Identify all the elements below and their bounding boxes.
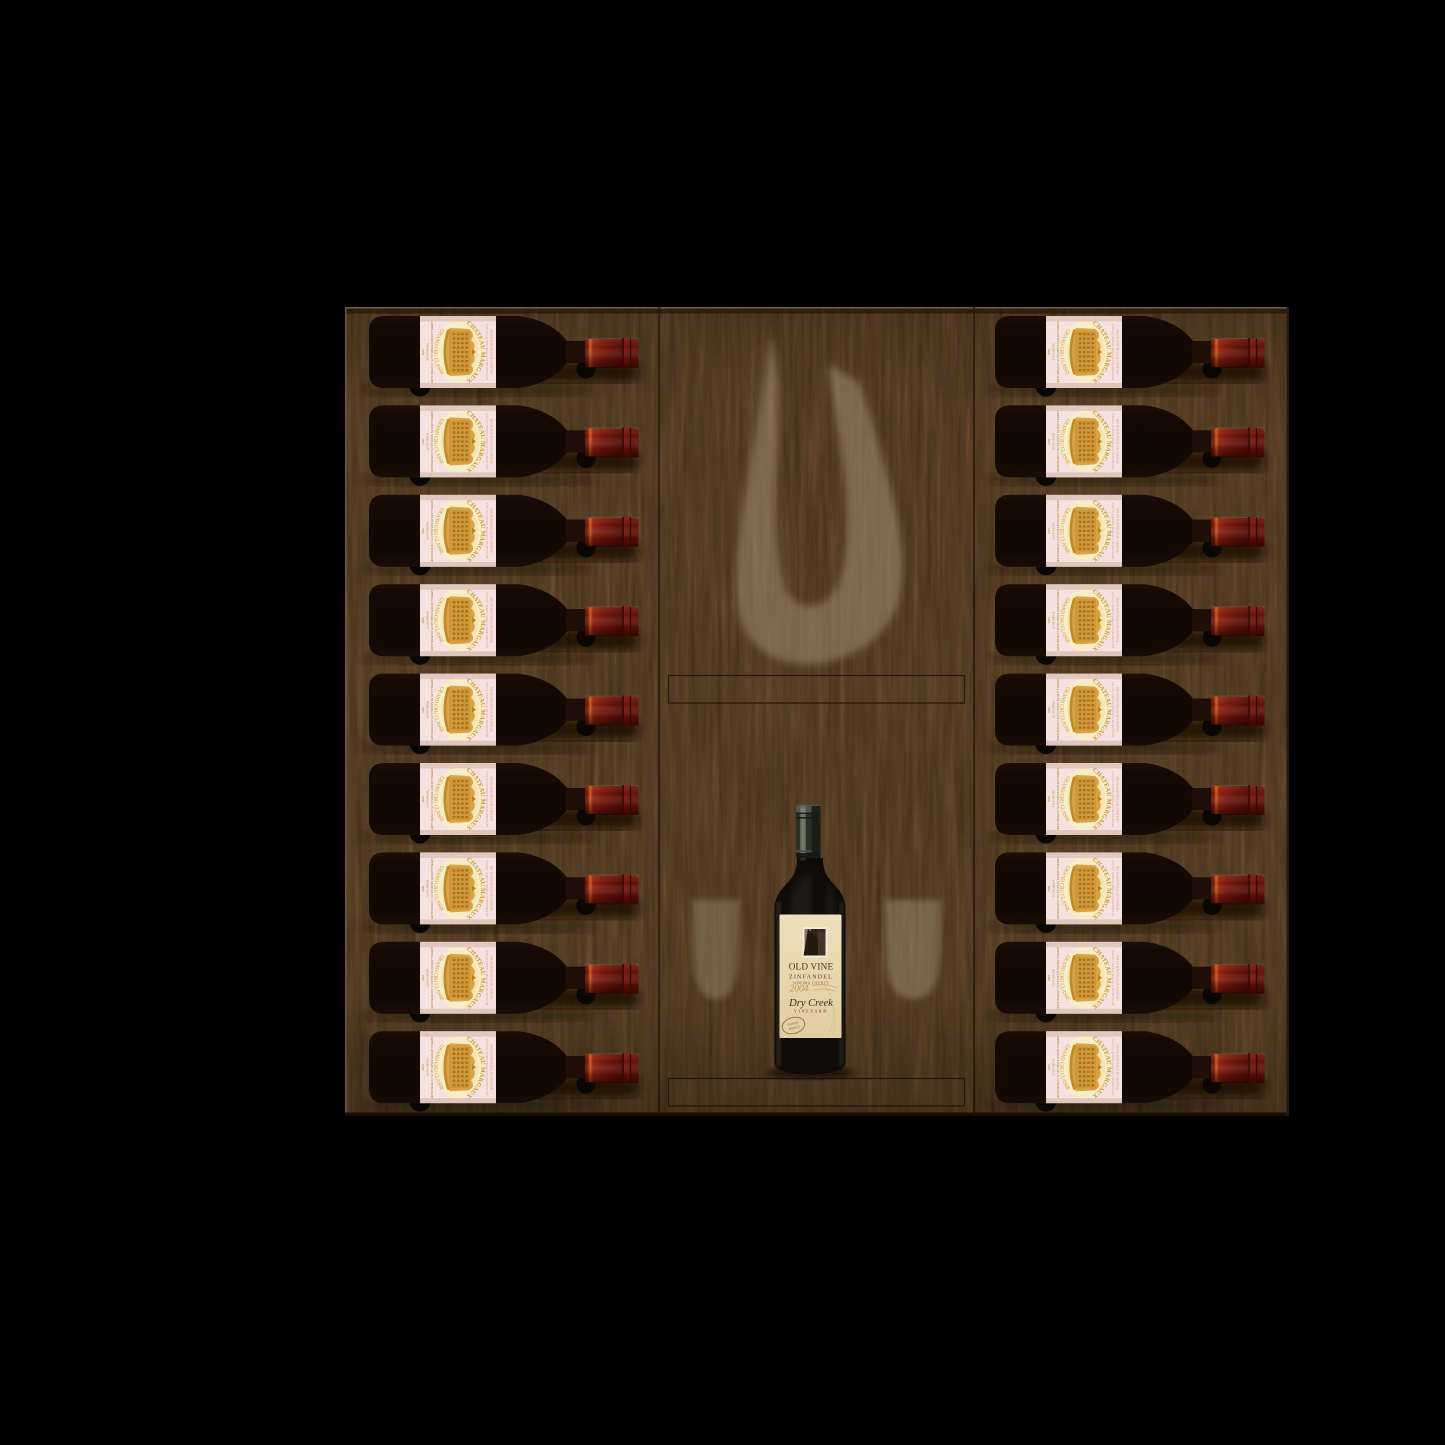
svg-text:OLD VINE: OLD VINE — [789, 962, 834, 972]
svg-text:ZINFANDEL: ZINFANDEL — [789, 975, 833, 981]
svg-text:2004: 2004 — [790, 985, 809, 995]
svg-text:VINEYARD: VINEYARD — [794, 1009, 828, 1014]
svg-text:Dry Creek: Dry Creek — [788, 998, 833, 1009]
